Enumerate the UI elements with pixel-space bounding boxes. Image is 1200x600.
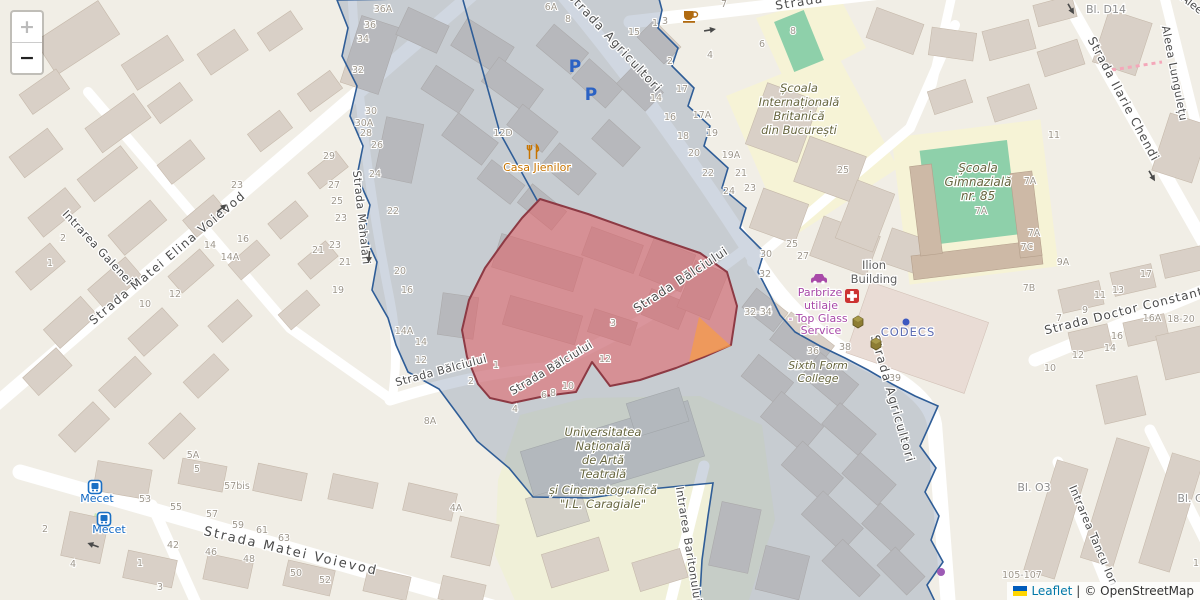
house-number: 10 bbox=[139, 299, 151, 310]
poi-label: Bl. O3 bbox=[1017, 481, 1050, 494]
poi-label: Sixth Form bbox=[788, 359, 848, 372]
house-number: 1 bbox=[47, 258, 53, 269]
bus-icon bbox=[98, 513, 111, 526]
poi-label: Parbrize bbox=[798, 286, 843, 299]
zoom-out-button[interactable]: − bbox=[12, 43, 42, 73]
house-number: 16 bbox=[1111, 331, 1123, 342]
house-number: 7C bbox=[1021, 242, 1034, 253]
house-number: 11 bbox=[1048, 130, 1060, 141]
house-number: 7A bbox=[1028, 228, 1041, 239]
house-number: 2 bbox=[60, 233, 66, 244]
dot-icon bbox=[903, 319, 910, 326]
poi-label: Universitatea bbox=[565, 425, 642, 439]
house-number: 14A bbox=[395, 326, 414, 337]
openstreetmap-link[interactable]: © OpenStreetMap bbox=[1084, 584, 1194, 598]
poi-label: CODECS bbox=[881, 325, 936, 339]
house-number: 1 bbox=[137, 558, 143, 569]
house-number: 14 bbox=[650, 93, 662, 104]
house-number: 48 bbox=[243, 554, 255, 565]
poi-label: nr. 85 bbox=[961, 189, 995, 203]
map-container[interactable]: P bbox=[0, 0, 1200, 600]
poi-label: Bl. C bbox=[1177, 492, 1200, 505]
poi-label: Britanică bbox=[773, 109, 824, 123]
house-number: 10 bbox=[1044, 363, 1056, 374]
house-number: 36 bbox=[807, 346, 819, 357]
house-number: 59 bbox=[232, 520, 244, 531]
house-number: 20 bbox=[394, 266, 406, 277]
house-number: 17 bbox=[676, 84, 688, 95]
house-number: 12 bbox=[415, 355, 427, 366]
house-number: 3 bbox=[157, 582, 163, 593]
house-number: 17 bbox=[1140, 269, 1152, 280]
house-number: 38 bbox=[839, 342, 851, 353]
house-number: 10 bbox=[562, 381, 574, 392]
house-number: 7A bbox=[1024, 176, 1037, 187]
house-number: 53 bbox=[139, 494, 151, 505]
house-number: 16 bbox=[664, 112, 676, 123]
house-number: 23 bbox=[744, 183, 756, 194]
house-number: 7B bbox=[1023, 283, 1036, 294]
house-number: 1 bbox=[493, 360, 499, 371]
house-number: 5A bbox=[187, 450, 200, 461]
zoom-control: + − bbox=[10, 10, 44, 75]
leaflet-link[interactable]: Leaflet bbox=[1031, 584, 1072, 598]
house-number: 8 bbox=[550, 388, 556, 399]
house-number: 25 bbox=[786, 239, 798, 250]
house-number: 19A bbox=[722, 150, 741, 161]
house-number: 17A bbox=[693, 110, 712, 121]
purpledot-icon bbox=[937, 568, 945, 576]
house-number: 8 bbox=[565, 14, 571, 25]
house-number: 23 bbox=[329, 240, 341, 251]
poi-label: Casa Jienilor bbox=[503, 161, 571, 174]
bus-icon bbox=[89, 481, 102, 494]
house-number: 19 bbox=[332, 285, 344, 296]
house-number: 42 bbox=[167, 540, 179, 551]
house-number: 7 bbox=[721, 0, 727, 10]
house-number: 14A bbox=[221, 252, 240, 263]
house-number: 105-107 bbox=[1002, 570, 1042, 581]
house-number: 25 bbox=[837, 165, 849, 176]
poi-label: Service bbox=[801, 324, 842, 337]
arrow-icon bbox=[704, 26, 717, 34]
poi-label: Building bbox=[851, 272, 898, 286]
poi-label: "I.L. Caragiale" bbox=[560, 497, 646, 511]
house-number: 30 bbox=[760, 249, 772, 260]
house-number: 36 bbox=[364, 20, 376, 31]
carshop-icon bbox=[811, 274, 827, 284]
house-number: 9 bbox=[1082, 305, 1088, 316]
house-number: 6 bbox=[759, 39, 765, 50]
house-number: 1 bbox=[1193, 558, 1199, 569]
house-number: 18 bbox=[677, 131, 689, 142]
house-number: 28 bbox=[360, 128, 372, 139]
house-number: 55 bbox=[170, 502, 182, 513]
house-number: 18-20 bbox=[1167, 314, 1195, 325]
house-number: 27 bbox=[328, 180, 340, 191]
house-number: 14 bbox=[415, 337, 427, 348]
house-number: 46 bbox=[205, 547, 217, 558]
house-number: 32 bbox=[759, 269, 771, 280]
house-number: 57 bbox=[206, 509, 218, 520]
house-number: 21 bbox=[735, 168, 747, 179]
house-number: 3 bbox=[662, 16, 668, 27]
house-number: 16 bbox=[401, 285, 413, 296]
house-number: 4 bbox=[70, 559, 76, 570]
house-number: 4 bbox=[512, 404, 518, 415]
zoom-in-button[interactable]: + bbox=[12, 12, 42, 43]
house-number: 5 bbox=[194, 464, 200, 475]
house-number: 63 bbox=[278, 533, 290, 544]
poi-label: Națională bbox=[576, 439, 631, 453]
house-number: 22 bbox=[702, 168, 714, 179]
house-number: 22 bbox=[387, 206, 399, 217]
house-number: 7 bbox=[1056, 313, 1062, 324]
house-number: 32 bbox=[352, 65, 364, 76]
house-number: 8 bbox=[790, 26, 796, 37]
parking-icon bbox=[569, 57, 581, 77]
poi-label: Școala bbox=[958, 161, 998, 175]
house-number: 52 bbox=[319, 575, 331, 586]
house-number: 61 bbox=[256, 525, 268, 536]
house-number: 21 bbox=[339, 257, 351, 268]
house-number: 39 bbox=[889, 373, 901, 384]
attribution-separator: | bbox=[1076, 584, 1080, 598]
house-number: 29 bbox=[323, 151, 335, 162]
poi-label: de Artă bbox=[582, 453, 624, 467]
house-number: 2 bbox=[667, 56, 673, 67]
house-number: 6A bbox=[545, 2, 558, 13]
house-number: 36A bbox=[374, 4, 393, 15]
poi-label: din București bbox=[761, 123, 838, 137]
house-number: 23 bbox=[335, 213, 347, 224]
house-number: 57bis bbox=[224, 481, 250, 492]
house-number: 19 bbox=[706, 128, 718, 139]
house-number: 16 bbox=[237, 234, 249, 245]
poi-label: Internațională bbox=[759, 95, 840, 109]
house-number: 16A bbox=[1143, 313, 1162, 324]
house-number: 8A bbox=[424, 416, 437, 427]
poi-label: Școala bbox=[780, 81, 818, 95]
poi-label: Teatrală bbox=[580, 467, 626, 481]
house-number: 20 bbox=[688, 148, 700, 159]
house-number: 21 bbox=[312, 245, 324, 256]
hospital-icon bbox=[845, 289, 859, 303]
house-number: 11 bbox=[1094, 290, 1106, 301]
house-number: 12 bbox=[1072, 350, 1084, 361]
house-number: 4 bbox=[707, 50, 713, 61]
house-number: 7A bbox=[975, 206, 988, 217]
house-number: 3 bbox=[610, 318, 616, 329]
house-number: 13 bbox=[1112, 285, 1124, 296]
house-number: 2 bbox=[468, 376, 474, 387]
street-label: Alee bbox=[1179, 0, 1200, 17]
parking-icon bbox=[585, 85, 597, 105]
house-number: 25 bbox=[331, 196, 343, 207]
house-number: 6 bbox=[541, 390, 547, 401]
box-icon bbox=[871, 338, 881, 350]
house-number: 4A bbox=[450, 503, 463, 514]
house-number: 34 bbox=[357, 34, 369, 45]
house-number: 50 bbox=[290, 568, 302, 579]
house-number: 27 bbox=[797, 251, 809, 262]
house-number: 24 bbox=[369, 169, 381, 180]
house-number: 30 bbox=[365, 106, 377, 117]
poi-label: Gimnazială bbox=[945, 175, 1012, 189]
house-number: 9A bbox=[1057, 257, 1070, 268]
house-number: 26 bbox=[371, 140, 383, 151]
house-number: 12D bbox=[493, 128, 512, 139]
house-number: 14 bbox=[1104, 343, 1116, 354]
house-number: 14 bbox=[204, 240, 216, 251]
house-number: 24 bbox=[723, 186, 735, 197]
house-number: 12 bbox=[169, 289, 181, 300]
house-number: 23 bbox=[231, 180, 243, 191]
poi-label: Bl. D14 bbox=[1086, 3, 1126, 16]
house-number: 1 bbox=[652, 18, 658, 29]
house-number: 2 bbox=[42, 524, 48, 535]
ukraine-flag-icon bbox=[1013, 586, 1027, 596]
house-number: 15 bbox=[628, 27, 640, 38]
poi-label: Ilion bbox=[862, 258, 886, 272]
poi-label: utilaje bbox=[804, 299, 838, 312]
box-icon bbox=[853, 316, 863, 328]
house-number: 12 bbox=[599, 354, 611, 365]
map-canvas[interactable]: P bbox=[0, 0, 1200, 600]
poi-label: College bbox=[797, 372, 838, 385]
poi-label: și Cinematografică bbox=[549, 483, 657, 497]
house-number: 32-34 bbox=[744, 307, 772, 318]
attribution-bar: Leaflet | © OpenStreetMap bbox=[1007, 582, 1200, 600]
